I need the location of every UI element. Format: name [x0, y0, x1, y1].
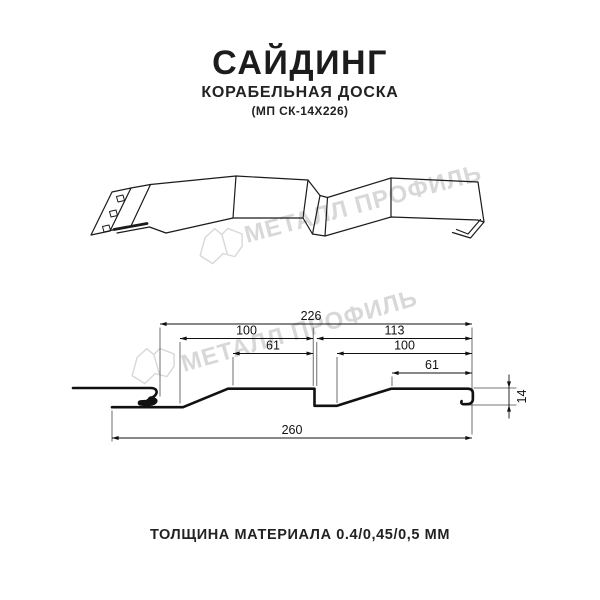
end-hook [453, 220, 485, 239]
watermark-text: МЕТАЛЛ ПРОФИЛЬ [242, 159, 485, 248]
page: { "header": { "title": "САЙДИНГ", "subti… [0, 0, 600, 600]
nail-hole [110, 210, 118, 217]
watermark-lower: МЕТАЛЛ ПРОФИЛЬ [128, 284, 421, 385]
dim-label-100-left: 100 [236, 324, 257, 338]
dim-label-113: 113 [385, 324, 405, 338]
metall-profil-logo-icon [128, 344, 178, 385]
dim-label-260: 260 [282, 423, 303, 437]
metall-profil-logo-icon [196, 224, 246, 265]
adjacent-panel-edge [73, 388, 157, 398]
dim-label-61-right: 61 [425, 358, 439, 372]
lock-detail [138, 397, 157, 405]
profile-outline [73, 388, 473, 407]
dim-label-61-left: 61 [266, 339, 280, 353]
dim-label-100-right: 100 [394, 339, 415, 353]
dim-label-226: 226 [301, 309, 322, 323]
material-thickness-note: ТОЛЩИНА МАТЕРИАЛА 0.4/0,45/0,5 ММ [0, 527, 600, 543]
nail-hole [117, 195, 125, 202]
extension-lines [112, 328, 517, 442]
dim-label-14: 14 [515, 390, 529, 404]
panel-profile [112, 389, 473, 408]
nail-hole [103, 225, 111, 232]
watermark-upper: МЕТАЛЛ ПРОФИЛЬ [196, 159, 485, 265]
technical-drawing: МЕТАЛЛ ПРОФИЛЬ МЕТАЛЛ ПРОФИЛЬ [0, 0, 600, 600]
